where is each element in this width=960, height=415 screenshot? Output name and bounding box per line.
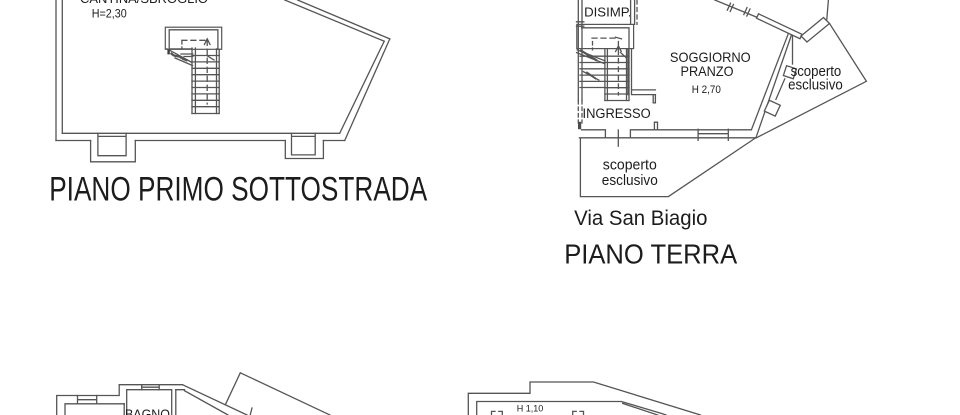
- svg-text:PRANZO: PRANZO: [681, 64, 734, 79]
- svg-text:H=2,30: H=2,30: [92, 9, 127, 21]
- svg-text:H 2,70: H 2,70: [692, 84, 721, 96]
- svg-text:BAGNO: BAGNO: [125, 406, 170, 415]
- svg-text:PIANO TERRA: PIANO TERRA: [564, 238, 737, 269]
- svg-text:scoperto: scoperto: [603, 158, 657, 174]
- svg-text:DISIMP.: DISIMP.: [584, 5, 632, 20]
- svg-text:esclusivo: esclusivo: [602, 173, 658, 189]
- svg-text:PIANO PRIMO SOTTOSTRADA: PIANO PRIMO SOTTOSTRADA: [49, 170, 427, 208]
- svg-text:esclusivo: esclusivo: [788, 78, 843, 94]
- svg-text:CANTINA/SBROGLIO: CANTINA/SBROGLIO: [80, 0, 208, 6]
- svg-text:SOGGIORNO: SOGGIORNO: [670, 50, 751, 65]
- svg-text:Via San Biagio: Via San Biagio: [574, 207, 707, 230]
- svg-text:INGRESSO: INGRESSO: [583, 106, 651, 121]
- svg-text:H 1,10: H 1,10: [517, 404, 544, 415]
